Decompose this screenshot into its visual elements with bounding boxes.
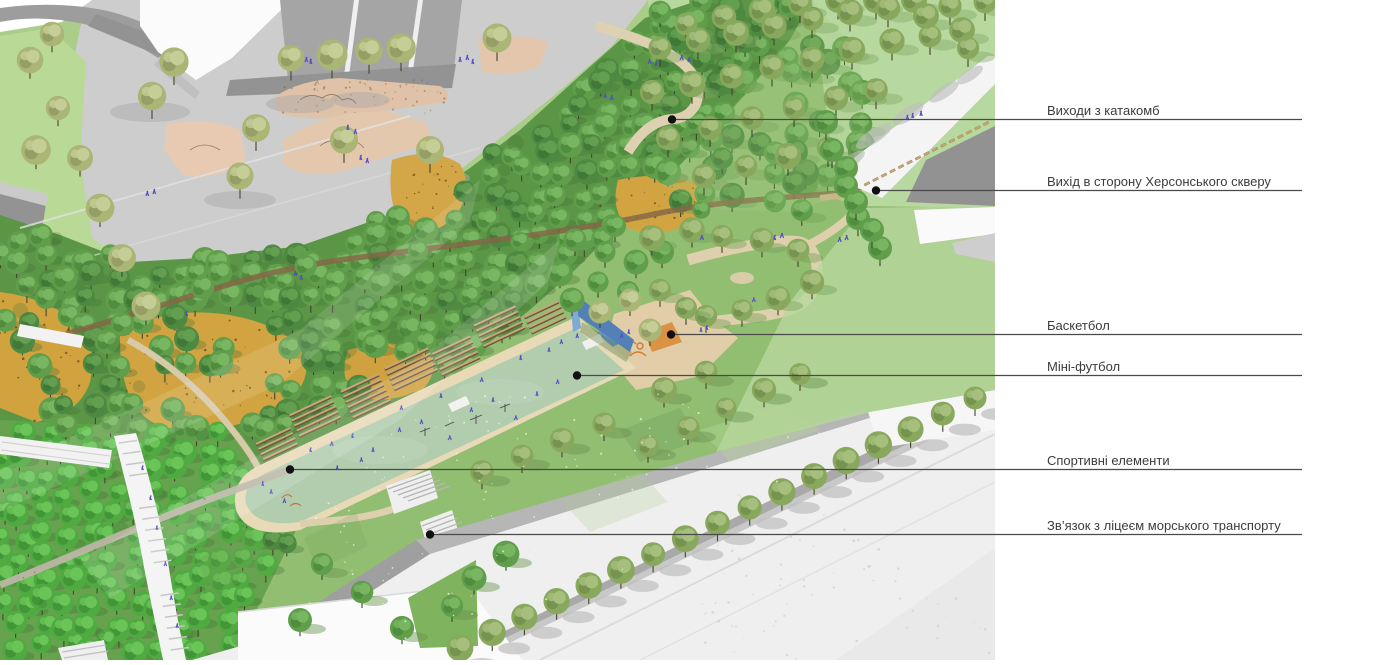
svg-text:Виходи з катакомб: Виходи з катакомб — [1047, 103, 1160, 118]
svg-text:Зв’язок з ліцеєм морського тра: Зв’язок з ліцеєм морського транспорту — [1047, 518, 1281, 533]
svg-text:Міні-футбол: Міні-футбол — [1047, 359, 1120, 374]
svg-text:Вихід в сторону Херсонського с: Вихід в сторону Херсонського скверу — [1047, 174, 1271, 189]
svg-text:Спортивні елементи: Спортивні елементи — [1047, 453, 1170, 468]
svg-text:Баскетбол: Баскетбол — [1047, 318, 1110, 333]
